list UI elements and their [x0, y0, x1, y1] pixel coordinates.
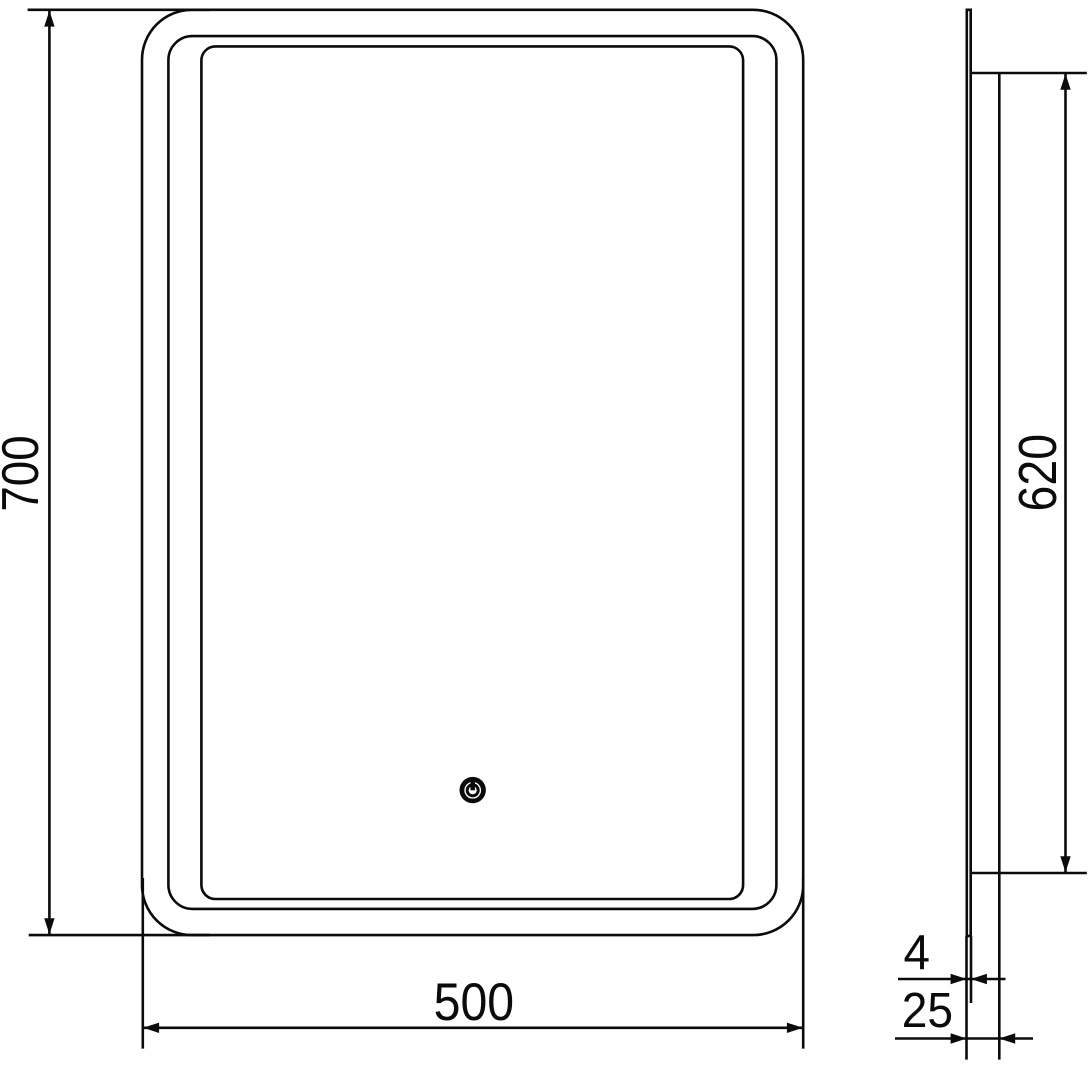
- svg-text:4: 4: [903, 926, 930, 980]
- svg-text:620: 620: [1009, 434, 1068, 512]
- svg-text:700: 700: [0, 435, 49, 511]
- svg-text:500: 500: [434, 973, 515, 1032]
- svg-text:25: 25: [902, 984, 953, 1038]
